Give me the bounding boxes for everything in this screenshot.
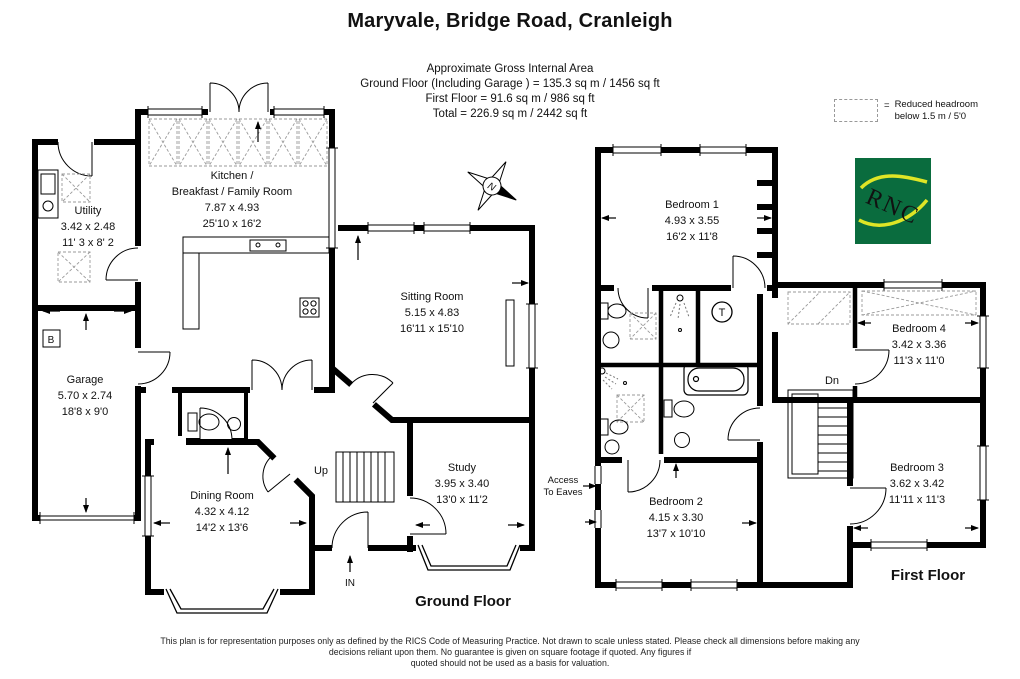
first-floor-partitions bbox=[598, 285, 855, 460]
ground-floor-doors bbox=[58, 83, 446, 548]
front-door bbox=[332, 512, 368, 548]
hob-icon bbox=[300, 298, 319, 317]
legend-line1: Reduced headroom bbox=[895, 99, 978, 111]
room-name: Study bbox=[435, 460, 489, 476]
room-dim-imperial: 11' 3 x 8' 2 bbox=[61, 235, 115, 251]
stairs-down-label: Dn bbox=[825, 375, 839, 387]
room-dim-imperial: 13'7 x 10'10 bbox=[647, 526, 706, 542]
fireplace-icon bbox=[506, 300, 514, 366]
room-dim-metric: 3.42 x 3.36 bbox=[892, 337, 946, 353]
room-dim-metric: 4.93 x 3.55 bbox=[665, 213, 719, 229]
page-title: Maryvale, Bridge Road, Cranleigh bbox=[0, 10, 1020, 33]
disclaimer-line2: decisions reliant upon them. No guarante… bbox=[0, 647, 1020, 658]
room-dim-imperial: 16'2 x 11'8 bbox=[665, 229, 719, 245]
disclaimer-line3: quoted should not be used as a basis for… bbox=[0, 658, 1020, 669]
room-dim-imperial: 18'8 x 9'0 bbox=[58, 404, 112, 420]
room-dim-imperial: 14'2 x 13'6 bbox=[190, 520, 254, 536]
room-label-bedroom1: Bedroom 1 4.93 x 3.55 16'2 x 11'8 bbox=[665, 197, 719, 245]
room-label-bedroom3: Bedroom 3 3.62 x 3.42 11'11 x 11'3 bbox=[889, 460, 945, 508]
disclaimer: This plan is for representation purposes… bbox=[0, 636, 1020, 669]
tank-label: T bbox=[719, 307, 726, 319]
room-name: Garage bbox=[58, 372, 112, 388]
ensuite-toilet-icon bbox=[600, 303, 626, 319]
reduced-headroom-legend: = Reduced headroom below 1.5 m / 5'0 bbox=[834, 99, 978, 122]
room-label-kitchen: Kitchen / Breakfast / Family Room 7.87 x… bbox=[172, 168, 292, 232]
room-dim-imperial: 25'10 x 16'2 bbox=[172, 216, 292, 232]
room-name: Bedroom 3 bbox=[889, 460, 945, 476]
access-line1: Access bbox=[543, 475, 582, 487]
room-dim-imperial: 13'0 x 11'2 bbox=[435, 492, 489, 508]
shower-icon bbox=[599, 368, 627, 389]
bathroom-basin-icon bbox=[675, 433, 690, 448]
ground-floor-label: Ground Floor bbox=[415, 593, 511, 610]
wc-toilet-icon bbox=[188, 413, 219, 431]
shower-room-basin-icon bbox=[605, 440, 619, 454]
room-label-bedroom2: Bedroom 2 4.15 x 3.30 13'7 x 10'10 bbox=[647, 494, 706, 542]
room-dim-imperial: 16'11 x 15'10 bbox=[400, 321, 464, 337]
wc-basin-icon bbox=[228, 418, 241, 431]
room-name: Bedroom 4 bbox=[892, 321, 946, 337]
room-label-dining-room: Dining Room 4.32 x 4.12 14'2 x 13'6 bbox=[190, 488, 254, 536]
room-dim-metric: 3.62 x 3.42 bbox=[889, 476, 945, 492]
room-name: Utility bbox=[61, 203, 115, 219]
room-dim-metric: 4.15 x 3.30 bbox=[647, 510, 706, 526]
shower-icon bbox=[670, 295, 689, 332]
legend-line2: below 1.5 m / 5'0 bbox=[895, 111, 978, 123]
agency-logo: RNC bbox=[855, 158, 931, 244]
stairs-down bbox=[788, 390, 853, 478]
disclaimer-line1: This plan is for representation purposes… bbox=[0, 636, 1020, 647]
room-name: Breakfast / Family Room bbox=[172, 184, 292, 200]
room-name: Bedroom 2 bbox=[647, 494, 706, 510]
room-dim-metric: 4.32 x 4.12 bbox=[190, 504, 254, 520]
entrance-in-label: IN bbox=[345, 578, 355, 589]
access-to-eaves-label: Access To Eaves bbox=[543, 475, 582, 499]
access-line2: To Eaves bbox=[543, 487, 582, 499]
room-dim-metric: 3.42 x 2.48 bbox=[61, 219, 115, 235]
kitchen-counter bbox=[183, 237, 329, 329]
room-label-garage: Garage 5.70 x 2.74 18'8 x 9'0 bbox=[58, 372, 112, 420]
room-label-utility: Utility 3.42 x 2.48 11' 3 x 8' 2 bbox=[61, 203, 115, 251]
area-ground-line: Ground Floor (Including Garage ) = 135.3… bbox=[0, 77, 1020, 92]
reduced-headroom-swatch bbox=[834, 99, 878, 122]
room-name: Bedroom 1 bbox=[665, 197, 719, 213]
compass-icon: N bbox=[454, 148, 530, 224]
legend-equals: = bbox=[884, 100, 890, 112]
kitchen-sink-icon bbox=[250, 240, 286, 251]
stairs-up bbox=[336, 452, 394, 502]
room-dim-metric: 5.15 x 4.83 bbox=[400, 305, 464, 321]
shower-room-toilet-icon bbox=[600, 419, 628, 435]
entrance-wall bbox=[312, 548, 410, 552]
room-name: Sitting Room bbox=[400, 289, 464, 305]
bath-icon bbox=[684, 364, 748, 395]
room-label-sitting-room: Sitting Room 5.15 x 4.83 16'11 x 15'10 bbox=[400, 289, 464, 337]
room-name: Dining Room bbox=[190, 488, 254, 504]
first-floor-label: First Floor bbox=[891, 567, 965, 584]
stairs-up-label: Up bbox=[314, 465, 328, 477]
room-dim-imperial: 11'3 x 11'0 bbox=[892, 353, 946, 369]
floorplan-page: N Up IN B Dn T Maryvale, Bridge Road, Cr… bbox=[0, 0, 1020, 679]
ensuite-basin-icon bbox=[603, 332, 619, 348]
legend-text: Reduced headroom below 1.5 m / 5'0 bbox=[895, 99, 978, 122]
room-dim-imperial: 11'11 x 11'3 bbox=[889, 492, 945, 508]
kitchen-walls bbox=[138, 112, 332, 390]
room-dim-metric: 3.95 x 3.40 bbox=[435, 476, 489, 492]
room-dim-metric: 7.87 x 4.93 bbox=[172, 200, 292, 216]
bedroom4-row-walls bbox=[775, 285, 983, 400]
landing-outer-wall bbox=[760, 545, 853, 588]
room-label-study: Study 3.95 x 3.40 13'0 x 11'2 bbox=[435, 460, 489, 508]
room-dim-metric: 5.70 x 2.74 bbox=[58, 388, 112, 404]
room-name: Kitchen / bbox=[172, 168, 292, 184]
boiler-label: B bbox=[48, 335, 55, 346]
bathroom-toilet-icon bbox=[664, 400, 694, 417]
area-heading: Approximate Gross Internal Area bbox=[0, 62, 1020, 77]
room-label-bedroom4: Bedroom 4 3.42 x 3.36 11'3 x 11'0 bbox=[892, 321, 946, 369]
utility-sink-icon bbox=[38, 170, 58, 218]
